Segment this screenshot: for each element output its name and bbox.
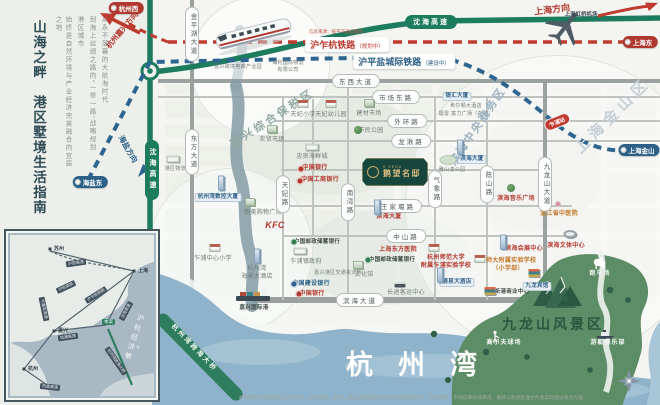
gov-icon xyxy=(167,156,180,163)
road-pill: 外环路 xyxy=(387,114,427,128)
tower-icon xyxy=(457,140,463,155)
poi-label: 浙江省中医院 xyxy=(540,211,578,219)
road-pill: 九龙山大道 xyxy=(538,157,552,212)
poi-label: 游艇俱乐部 xyxy=(590,340,625,348)
poi-label: 雅山漾公园 xyxy=(439,167,466,174)
disclaimer-text: 本资料所示内容截至2021年9月，图中交通、教育、商业等规划信息来源于政府相关部… xyxy=(170,394,656,401)
tower-icon xyxy=(437,268,443,283)
bridge-name: 杭州湾跨海大桥 xyxy=(170,321,221,373)
poi-label: 海利国际物流 有限公司 xyxy=(272,60,304,73)
station-badge: 杭州西 xyxy=(109,2,144,14)
expressway-pill-vertical: 沈海高速 xyxy=(145,140,159,200)
poi-label: 滨海音乐广场 xyxy=(497,196,535,204)
region-inset-map: 沪杭经济带 本案 苏州上海嘉兴杭州沪昆高速沪杭高铁乍嘉苏高速沪乍杭铁路杭浦高速沈… xyxy=(4,229,160,402)
railway-label-red: 沪乍杭铁路（规划中） xyxy=(305,37,389,52)
city-dot xyxy=(49,248,52,251)
school-icon xyxy=(210,244,221,252)
railway-name: 沪平盐城际铁路 xyxy=(358,57,421,67)
poi-label: 跑马场 xyxy=(589,271,610,279)
road-pill: 中山路 xyxy=(386,229,426,243)
poi-label: 杭州师范大学 附属乍浦实验学校 xyxy=(421,255,471,271)
tree-icon xyxy=(507,184,515,192)
city-dot xyxy=(53,330,56,333)
city-dot xyxy=(133,270,136,273)
direction-label: 海盐方向 xyxy=(116,133,141,164)
poi-label: 滨海文体中心 xyxy=(547,243,585,251)
metro-icon xyxy=(111,5,117,11)
poi-label: 滨海大厦 xyxy=(376,214,401,222)
poi-label: 建材市场 xyxy=(356,111,381,119)
bank-red-icon xyxy=(296,291,303,298)
project-marker: 本案 xyxy=(102,319,115,325)
bldg-icon xyxy=(267,125,277,133)
city-label: 苏州 xyxy=(54,245,64,252)
poi-label: 嘉兴跨境电商产业园 xyxy=(214,64,262,71)
poi-label: 长途客运中心 xyxy=(387,290,425,298)
expressway-pill-top: 沈海高速 xyxy=(405,15,457,29)
scenic-area-name: 九龙山风景区 xyxy=(502,314,604,334)
station-badge: 海盐东 xyxy=(73,176,108,188)
poi-label: 中国建设银行 xyxy=(292,281,330,289)
flower-icon xyxy=(555,201,561,207)
bay-name: 杭州湾 xyxy=(346,343,502,382)
tower-icon xyxy=(254,249,260,264)
station-badge: 上海金山 xyxy=(619,144,660,156)
tower-icon xyxy=(374,200,380,215)
metro-icon xyxy=(625,39,631,45)
road-pill: 市场东路 xyxy=(372,90,420,104)
poi-label: 上海东方医院 xyxy=(379,247,417,255)
project-name: 鹅望名邸 xyxy=(383,169,421,178)
books-icon xyxy=(485,287,496,295)
tower-icon xyxy=(500,235,506,250)
bank-red-icon xyxy=(298,166,305,173)
bank-blue-icon xyxy=(291,281,298,288)
bldg-icon xyxy=(364,99,374,107)
poi-label: 乍浦镇政府 xyxy=(290,259,322,267)
station-badge: 上海东 xyxy=(623,36,658,48)
school-icon xyxy=(326,100,337,108)
poi-label: 清泉大酒店 xyxy=(439,278,474,287)
project-plaque: S·VEGA 鹅望名邸 xyxy=(362,158,428,186)
bank-red-icon xyxy=(297,178,304,185)
city-label: 嘉兴 xyxy=(58,327,68,334)
poi-label: 银汇大厦 xyxy=(442,92,471,101)
road-pill: 金平湖大道 xyxy=(185,7,199,62)
poi-label: 中国银行 xyxy=(299,291,324,299)
gov-icon xyxy=(294,248,307,255)
books-icon xyxy=(529,269,540,277)
poi-label: 乍浦中心小学 xyxy=(194,256,232,264)
poi-label: 杭州湾数控大厦 xyxy=(195,193,242,202)
school-icon xyxy=(298,100,309,108)
poi-label: 滨海会展中心 xyxy=(505,246,543,254)
map-stage: 沪乍杭铁路（规划中） 信息来源：临平交通运输局 沪平盐城际铁路（建设中） 沈海高… xyxy=(0,0,660,405)
city-label: 杭州 xyxy=(28,365,38,372)
bank-green-icon xyxy=(365,257,372,264)
railway-name: 沪乍杭铁路 xyxy=(310,40,355,50)
poi-label: 中国邮政储蓄银行 xyxy=(294,239,340,246)
road-pill: 王家堰路 xyxy=(374,199,422,213)
map-page: { "left_panel": { "title": "山海之畔 港区墅境生活指… xyxy=(0,0,660,405)
station-oval: 乍浦站 xyxy=(544,113,570,131)
badge-label: 上海金山 xyxy=(629,145,655,155)
road-pill: 东西大道 xyxy=(332,74,380,88)
bldg-icon xyxy=(245,198,255,206)
school-icon xyxy=(475,255,486,263)
school-icon xyxy=(429,244,440,252)
poi-label: 天妃小学 xyxy=(290,112,315,120)
poi-label: 文化馆 xyxy=(355,272,374,280)
poi-label: 忠贤海鲜城 xyxy=(296,154,328,162)
poi-label: KFC xyxy=(265,220,284,232)
railway-status: （规划中） xyxy=(356,44,384,50)
road-pill: 陈山路 xyxy=(480,165,494,203)
road-pill: 天妃路 xyxy=(276,175,290,213)
road-pill: 气象路 xyxy=(428,170,442,208)
railway-source-note: 信息来源：临平交通运输局 xyxy=(309,29,363,35)
badge-label: 上海东 xyxy=(633,37,653,47)
metro-icon xyxy=(75,179,81,185)
city-dot xyxy=(23,368,26,371)
road-pill: 东方大道 xyxy=(185,129,199,175)
park-icon xyxy=(440,155,457,165)
project-logo-icon xyxy=(367,166,379,178)
road-pill: 龙湫路 xyxy=(391,134,431,148)
direction-label: 杭州嘉兴方向 xyxy=(103,9,140,51)
poi-label: 天妃幼儿园 xyxy=(315,112,347,120)
poi-label: 中国工商银行 xyxy=(301,177,339,185)
tower-icon xyxy=(218,176,224,191)
railway-label-blue: 沪平盐城际铁路（建设中） xyxy=(353,54,455,69)
badge-label: 海盐东 xyxy=(83,177,103,187)
bank-green-icon xyxy=(291,239,298,246)
bldg-icon xyxy=(353,261,363,269)
poi-label: 物美购物广场 xyxy=(244,210,282,218)
poi-label: 农贸市场 xyxy=(259,137,284,145)
stadium-icon xyxy=(564,230,577,238)
poi-label: 嘉兴国际港 xyxy=(239,305,268,312)
poi-label: 希尔顿大酒店 xyxy=(450,103,482,110)
bus-icon xyxy=(395,283,406,288)
poi-label: 中国银行 xyxy=(302,165,327,173)
poi-label: 九龙宾馆 xyxy=(522,282,551,291)
poi-label: 杭州湾 海景大酒店 xyxy=(241,266,273,282)
road-pill: 滨海大道 xyxy=(336,293,384,307)
airport-label: 上海虹桥机场 xyxy=(564,10,597,18)
tree-icon xyxy=(354,126,362,134)
metro-icon xyxy=(621,147,627,153)
poi-label: 中国邮政储蓄银行 xyxy=(369,257,415,264)
inset-content: 沪杭经济带 本案 苏州上海嘉兴杭州沪昆高速沪杭高铁乍嘉苏高速沪乍杭铁路杭浦高速沈… xyxy=(10,235,154,396)
road-pill: 南湾路 xyxy=(341,183,355,221)
city-label: 上海 xyxy=(138,267,148,274)
poi-label: 市民公园 xyxy=(358,128,383,136)
railway-status: （建设中） xyxy=(422,61,450,67)
gov-icon xyxy=(306,144,319,151)
